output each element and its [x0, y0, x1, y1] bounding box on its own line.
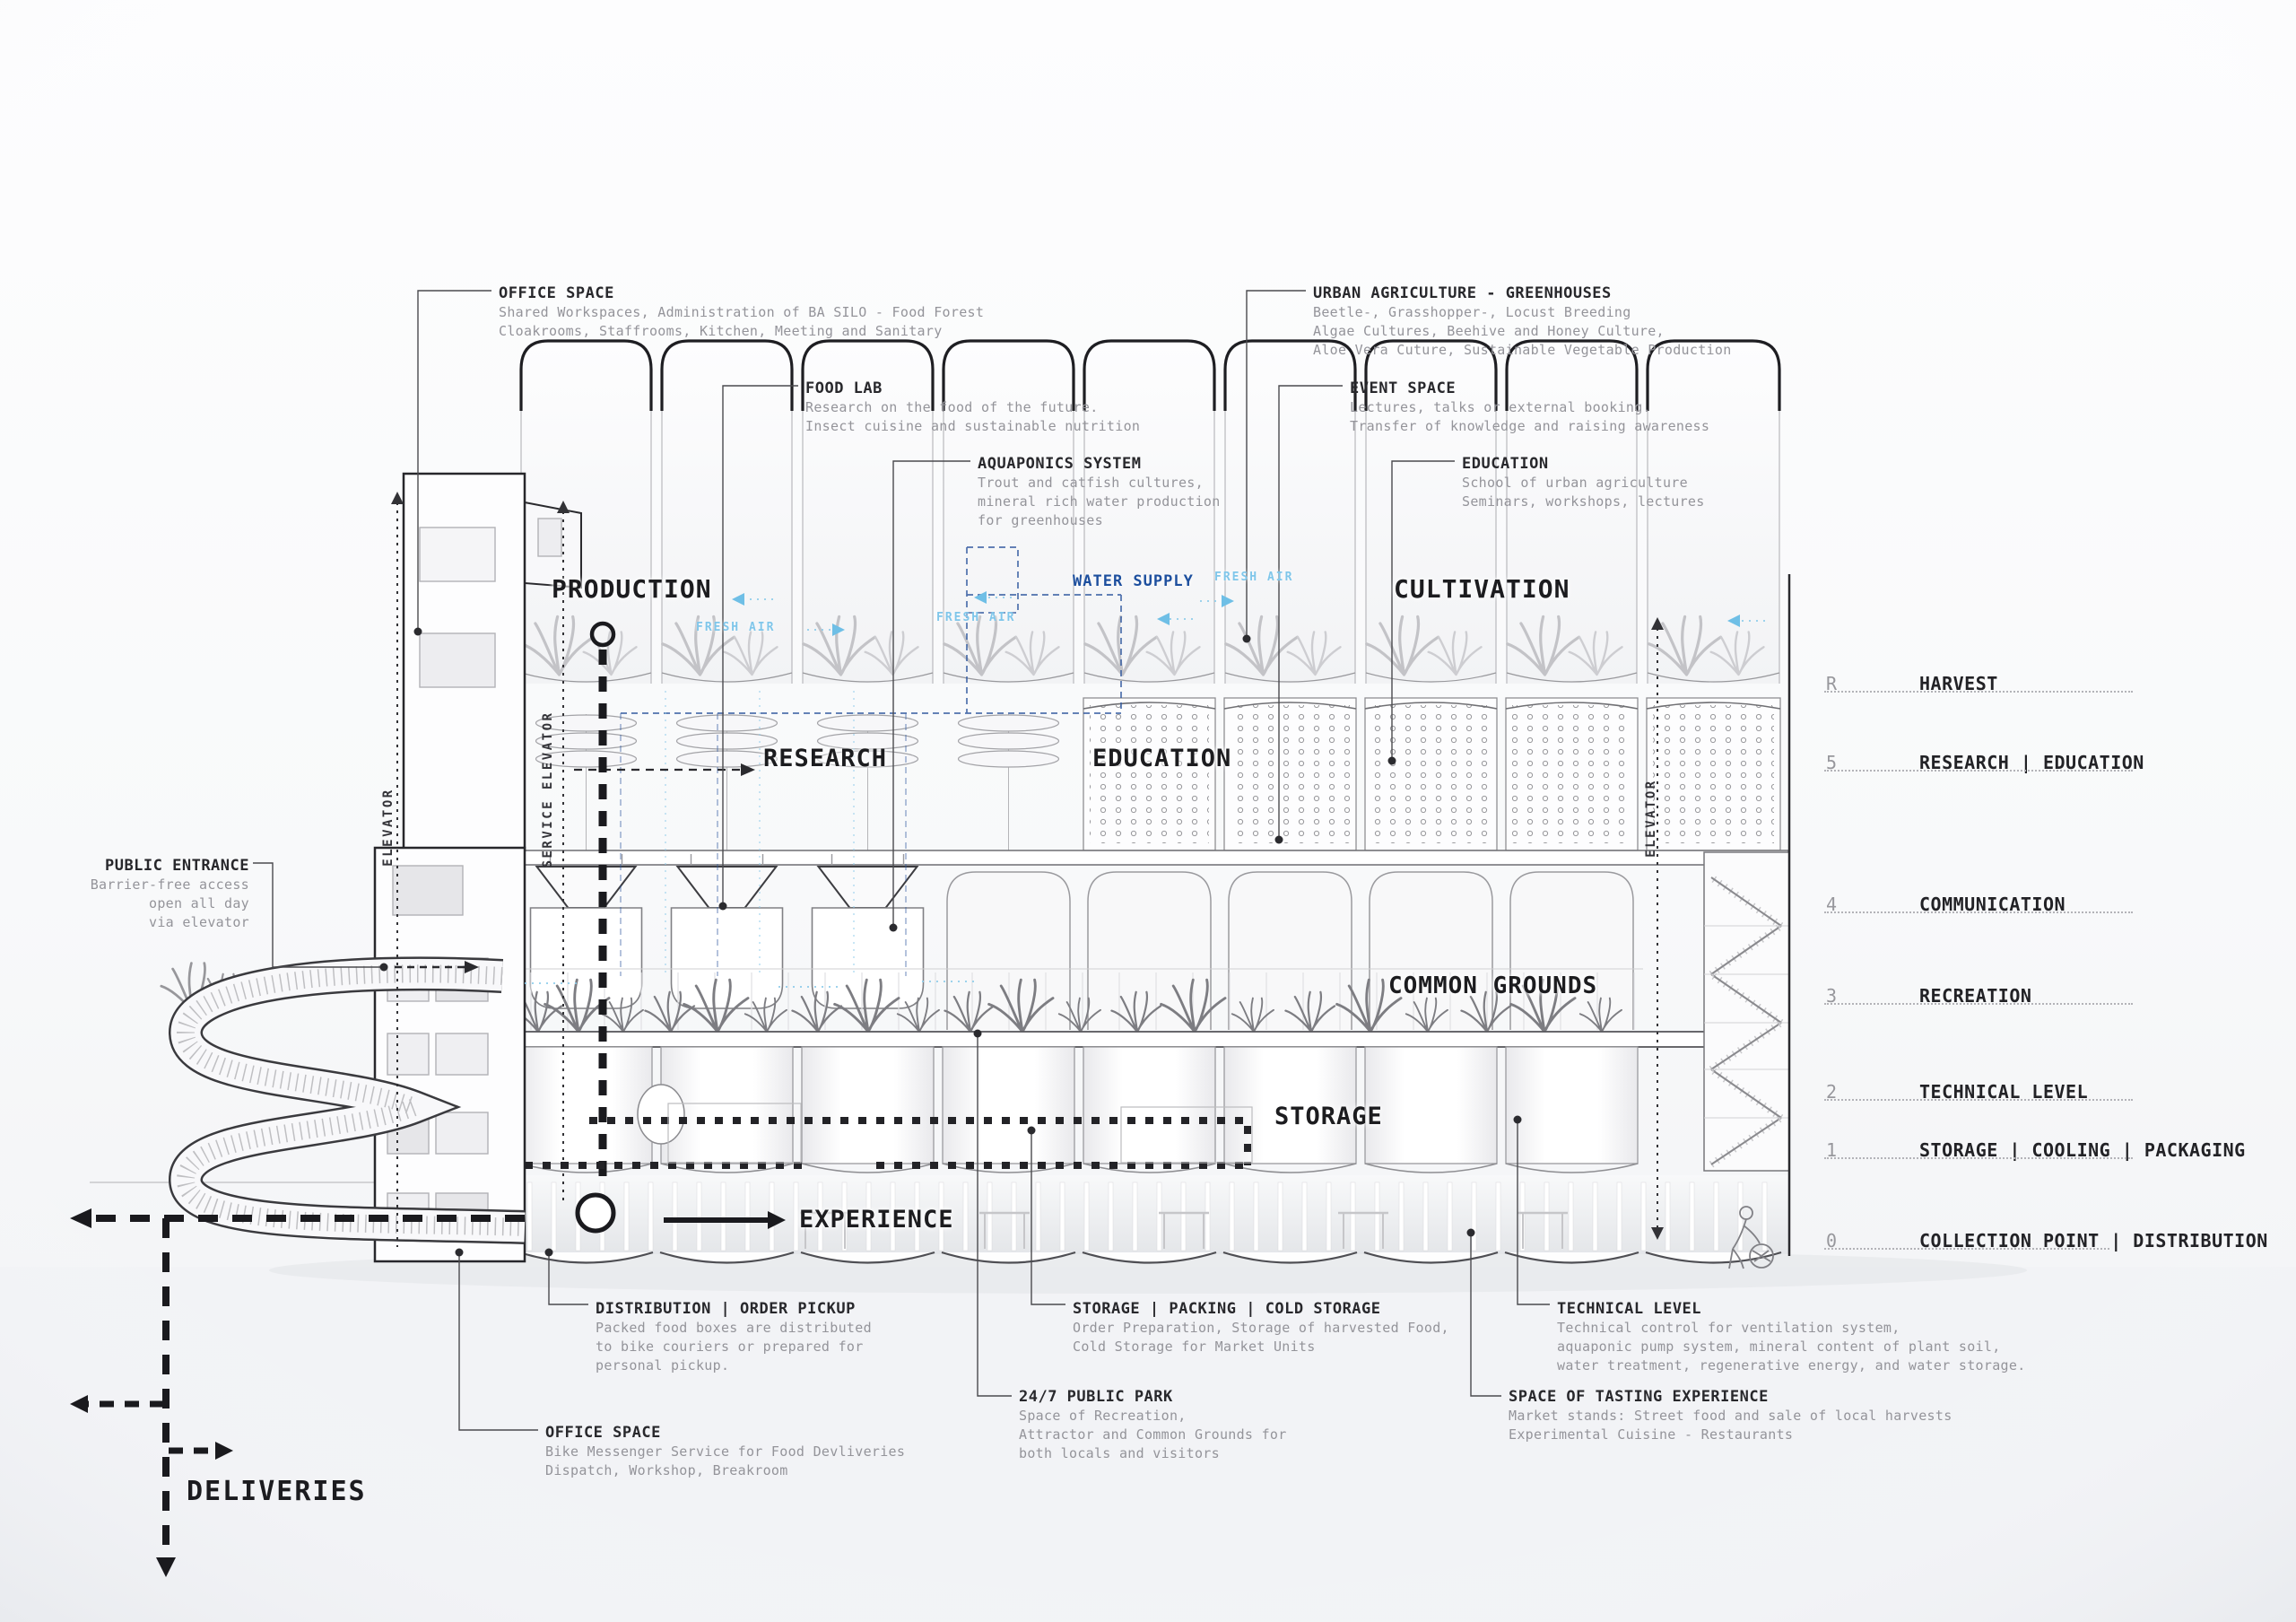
- level-dotted-leader: [1824, 1157, 2133, 1159]
- fresh-air-label-2: FRESH AIR: [936, 611, 1015, 624]
- annotation-technical-level: TECHNICAL LEVEL Technical control for ve…: [1557, 1299, 2026, 1375]
- zone-label-education: EDUCATION: [1092, 745, 1231, 772]
- level-dotted-leader: [1824, 770, 2133, 772]
- zone-label-cultivation: CULTIVATION: [1394, 574, 1570, 604]
- building-drawing: [0, 0, 2296, 1622]
- annotation-event-space: EVENT SPACE Lectures, talks or external …: [1350, 379, 1709, 436]
- level-dotted-leader: [1824, 911, 2133, 913]
- level-dotted-leader: [1824, 1003, 2133, 1005]
- annotation-distribution: DISTRIBUTION | ORDER PICKUP Packed food …: [596, 1299, 872, 1375]
- level-dotted-leader: [1824, 691, 2133, 693]
- fresh-air-label-1: FRESH AIR: [696, 621, 775, 634]
- distribution-node: [578, 1195, 613, 1231]
- water-supply-label: WATER SUPPLY: [1073, 572, 1194, 590]
- zone-label-research: RESEARCH: [763, 745, 887, 772]
- level-dotted-leader: [1824, 1099, 2133, 1101]
- deliveries-label: DELIVERIES: [187, 1476, 367, 1507]
- annotation-public-park: 24/7 PUBLIC PARK Space of Recreation, At…: [1019, 1387, 1287, 1463]
- annotation-urban-agriculture: URBAN AGRICULTURE - GREENHOUSES Beetle-,…: [1313, 283, 1732, 360]
- annotation-education: EDUCATION School of urban agriculture Se…: [1462, 454, 1705, 511]
- annotation-office-space-bottom: OFFICE SPACE Bike Messenger Service for …: [545, 1423, 905, 1480]
- fresh-air-label-3: FRESH AIR: [1214, 571, 1293, 584]
- zone-label-experience: EXPERIENCE: [799, 1206, 954, 1234]
- zone-label-common-grounds: COMMON GROUNDS: [1388, 972, 1597, 999]
- annotation-office-space-top: OFFICE SPACE Shared Workspaces, Administ…: [499, 283, 984, 341]
- annotation-public-entrance: PUBLIC ENTRANCE Barrier-free access open…: [27, 856, 249, 932]
- zone-label-storage: STORAGE: [1274, 1103, 1383, 1130]
- zone-label-production: PRODUCTION: [552, 574, 712, 604]
- annotation-storage-packing: STORAGE | PACKING | COLD STORAGE Order P…: [1073, 1299, 1449, 1356]
- section-diagram: PRODUCTION CULTIVATION RESEARCH EDUCATIO…: [0, 0, 2296, 1622]
- annotation-tasting: SPACE OF TASTING EXPERIENCE Market stand…: [1509, 1387, 1952, 1444]
- level-dotted-leader: [1824, 1248, 2109, 1250]
- annotation-aquaponics: AQUAPONICS SYSTEM Trout and catfish cult…: [978, 454, 1221, 530]
- annotation-food-lab: FOOD LAB Research on the food of the fut…: [805, 379, 1140, 436]
- atmosphere-veil: [0, 0, 2296, 1622]
